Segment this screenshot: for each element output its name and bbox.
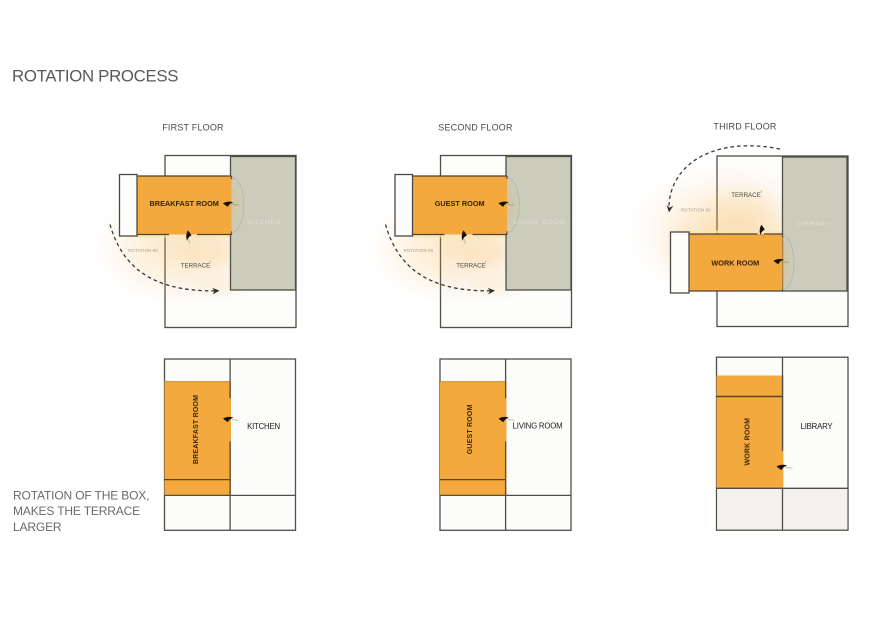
svg-text:FIRST FLOOR: FIRST FLOOR: [162, 123, 224, 133]
svg-text:LIVING ROOM: LIVING ROOM: [513, 421, 563, 430]
svg-text:SECOND FLOOR: SECOND FLOOR: [438, 123, 513, 133]
svg-text:KITCHEN: KITCHEN: [247, 219, 281, 226]
svg-text:TERRACE: TERRACE: [181, 263, 211, 270]
svg-text:GUEST ROOM: GUEST ROOM: [467, 404, 474, 454]
svg-text:BREAKFAST ROOM: BREAKFAST ROOM: [193, 395, 200, 464]
svg-text:MAKES THE TERRACE: MAKES THE TERRACE: [13, 504, 140, 518]
svg-text:LIBRARY: LIBRARY: [801, 422, 834, 431]
svg-text:THIRD FLOOR: THIRD FLOOR: [713, 122, 777, 132]
svg-text:ROTATION 90: ROTATION 90: [128, 248, 158, 253]
svg-text:BREAKFAST ROOM: BREAKFAST ROOM: [150, 199, 219, 208]
svg-text:TERRACE: TERRACE: [456, 263, 486, 270]
svg-text:ROTATION 90: ROTATION 90: [404, 248, 434, 253]
svg-text:ROTATION OF THE BOX,: ROTATION OF THE BOX,: [13, 489, 149, 503]
svg-text:ROTATION 90: ROTATION 90: [681, 207, 711, 212]
svg-text:+: +: [209, 260, 212, 265]
svg-text:WORK ROOM: WORK ROOM: [711, 259, 759, 268]
svg-text:KITCHEN: KITCHEN: [247, 422, 280, 431]
svg-text:LIBRARY: LIBRARY: [798, 221, 831, 228]
svg-text:+: +: [484, 260, 487, 265]
svg-text:GUEST ROOM: GUEST ROOM: [435, 199, 485, 208]
svg-text:LIVING ROOM: LIVING ROOM: [514, 219, 566, 226]
svg-text:WORK ROOM: WORK ROOM: [745, 418, 752, 466]
svg-text:+: +: [760, 189, 763, 194]
svg-text:TERRACE: TERRACE: [731, 192, 761, 199]
svg-text:LARGER: LARGER: [13, 520, 62, 534]
svg-text:ROTATION PROCESS: ROTATION PROCESS: [12, 67, 178, 86]
